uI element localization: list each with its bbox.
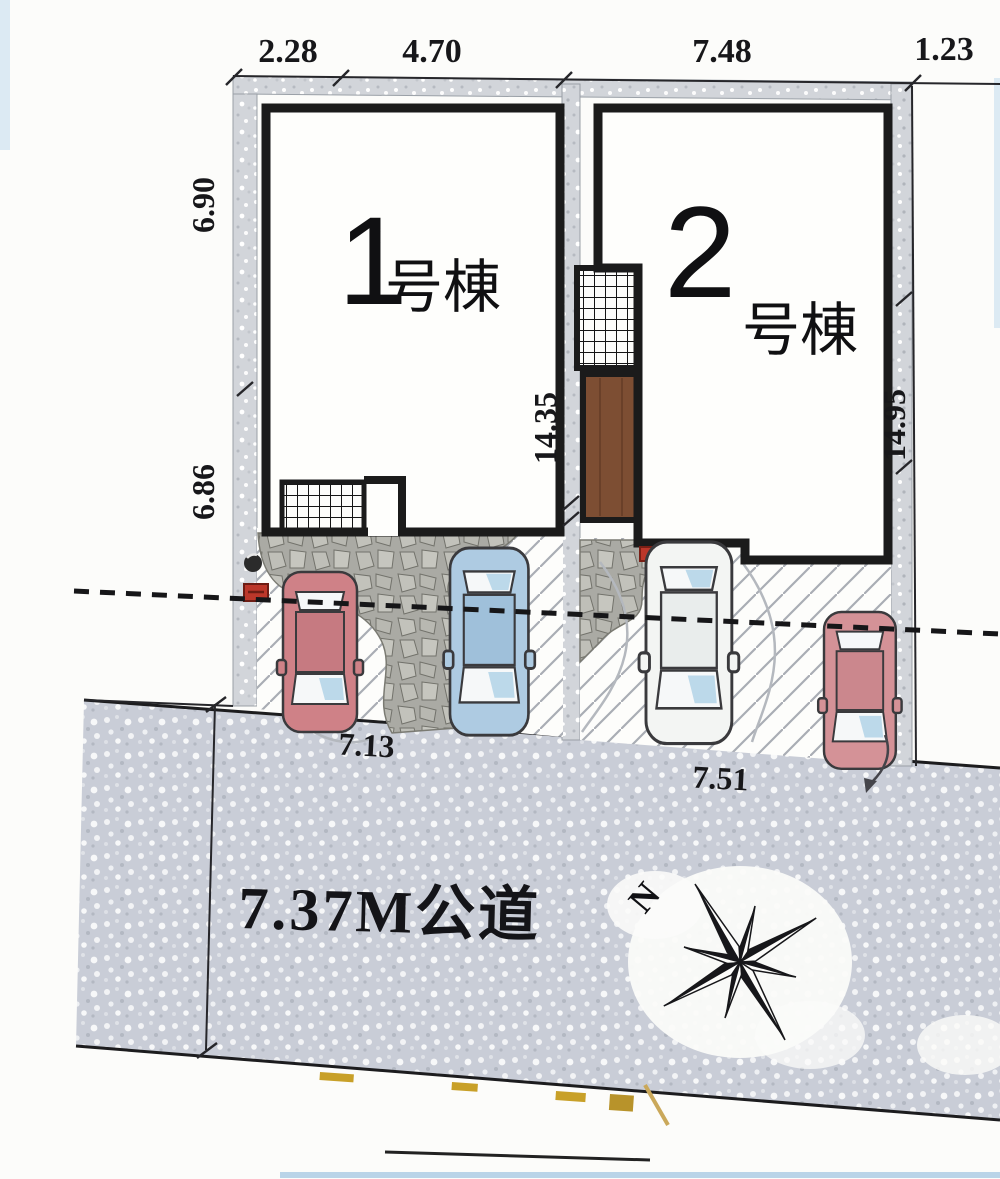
building-1-entrance-gap <box>368 508 398 536</box>
building-1-porch-tiles <box>282 482 364 530</box>
dim-top-3: 7.48 <box>692 33 752 70</box>
car-mirror <box>893 698 902 713</box>
boundary-strip-left <box>233 94 257 706</box>
building-2: 2 号棟 <box>598 108 888 561</box>
boundary-strip-center <box>562 84 580 740</box>
site-plan-drawing: 1 号棟 2 号棟 <box>0 0 1000 1179</box>
dim-right-depth: 14.95 <box>876 389 912 461</box>
car-roof <box>296 612 344 672</box>
dim-top-4: 1.23 <box>914 31 974 68</box>
car-mirror <box>728 653 738 672</box>
car-mirror <box>639 653 649 672</box>
scan-artifact-bottom <box>280 1172 1000 1178</box>
scan-artifact-left <box>0 0 10 150</box>
car-blue <box>444 548 535 735</box>
lot2-side-yard <box>577 268 640 520</box>
car-mirror <box>818 698 827 713</box>
scan-artifact-right <box>994 78 1000 328</box>
dim-left-lower: 6.86 <box>185 464 221 520</box>
car-pink <box>818 612 901 769</box>
dim-top-2: 4.70 <box>402 33 462 70</box>
car-roof <box>837 651 884 710</box>
dim-top-1: 2.28 <box>258 33 318 70</box>
building-2-number: 2 <box>664 179 736 325</box>
car-mirror <box>444 651 454 669</box>
building-1-suffix: 号棟 <box>385 255 501 320</box>
building-1: 1 号棟 <box>266 108 560 536</box>
car-rear-window <box>837 632 884 650</box>
car-red <box>277 572 363 732</box>
dim-frontage-lot1: 7.13 <box>338 726 396 765</box>
building-1-outline <box>266 108 560 532</box>
lot2-wood-deck <box>583 374 640 520</box>
lot2-tile-terrace <box>577 268 639 368</box>
dim-frontage-lot2: 7.51 <box>692 759 750 798</box>
dim-left-upper: 6.90 <box>185 177 221 233</box>
car-roof <box>464 595 515 665</box>
car-mirror <box>277 660 286 675</box>
car-mirror <box>525 651 535 669</box>
building-2-suffix: 号棟 <box>742 298 858 363</box>
site-plan-scan: 1 号棟 2 号棟 <box>0 0 1000 1179</box>
road-name-label: 7.37M公道 <box>238 875 542 949</box>
car-white <box>639 542 739 744</box>
car-mirror <box>354 660 363 675</box>
car-roof <box>661 592 717 668</box>
dim-center-depth: 14.35 <box>527 392 563 464</box>
